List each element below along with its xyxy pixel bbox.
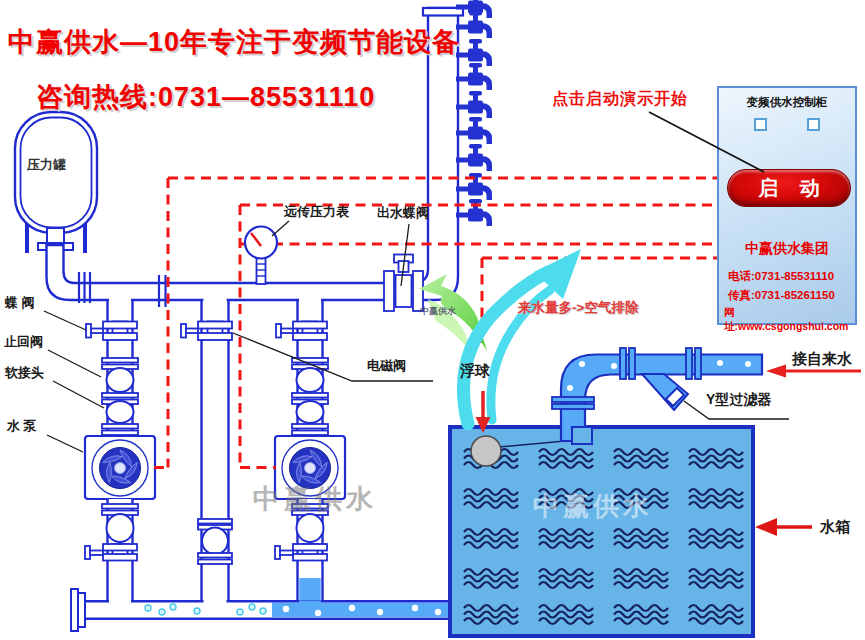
watermark-riser: 中赢供水 (420, 306, 456, 316)
flexible-joint-label: 软接头 (5, 366, 44, 381)
butterfly-valve-label: 蝶 阀 (5, 296, 35, 311)
fax-number: 传真:0731-85261150 (728, 288, 835, 303)
website-url: 网址:www.csgongshui.com (724, 306, 855, 334)
tap-water-label: 接自来水 (792, 350, 852, 367)
page-title: 中赢供水—10年专注于变频节能设备 (8, 27, 460, 58)
y-strainer-label: Y型过滤器 (706, 391, 771, 407)
water-tank-label: 水箱 (820, 518, 850, 535)
water-tank (450, 427, 753, 636)
solenoid-valve-label: 电磁阀 (367, 359, 406, 374)
phone-number: 电话:0731-85531110 (728, 269, 834, 284)
water-pump-label: 水 泵 (7, 419, 37, 434)
indicator-checkbox-2[interactable] (807, 118, 820, 131)
float-ball (471, 436, 501, 466)
air-vent-note: 来水量多->空气排除 (518, 300, 638, 316)
cabinet-title: 变频供水控制柜 (719, 95, 855, 110)
water-tank-arrow (755, 518, 812, 536)
label-pointer-lines (44, 221, 789, 452)
watermark-center: 中赢供水 (253, 484, 377, 515)
remote-gauge-label: 远传压力表 (284, 205, 349, 220)
hotline: 咨询热线:0731—85531110 (36, 82, 375, 113)
demo-start-hint: 点击启动演示开始 (552, 90, 688, 108)
watermark-tank: 中赢供水 (533, 492, 653, 522)
pressure-tank-label: 压力罐 (27, 158, 66, 173)
float-ball-label: 浮球 (460, 362, 490, 379)
water-supply-demo-page: 中赢供水—10年专注于变频节能设备 咨询热线:0731—85531110 点击启… (0, 0, 865, 640)
company-name: 中赢供水集团 (719, 240, 855, 258)
pump1-branch (85, 297, 155, 601)
solenoid-branch (181, 297, 232, 601)
float-valve-outlet (572, 427, 592, 444)
outlet-valve-label: 出水蝶阀 (377, 206, 429, 221)
pressure-tank (15, 112, 97, 253)
vfd-control-cabinet: 变频供水控制柜 启 动 中赢供水集团 电话:0731-85531110 传真:0… (717, 86, 857, 325)
pump2-branch (275, 297, 345, 602)
start-button[interactable]: 启 动 (727, 169, 851, 207)
indicator-checkbox-1[interactable] (754, 118, 767, 131)
check-valve-label: 止回阀 (4, 335, 43, 350)
riser-taps (456, 0, 492, 226)
